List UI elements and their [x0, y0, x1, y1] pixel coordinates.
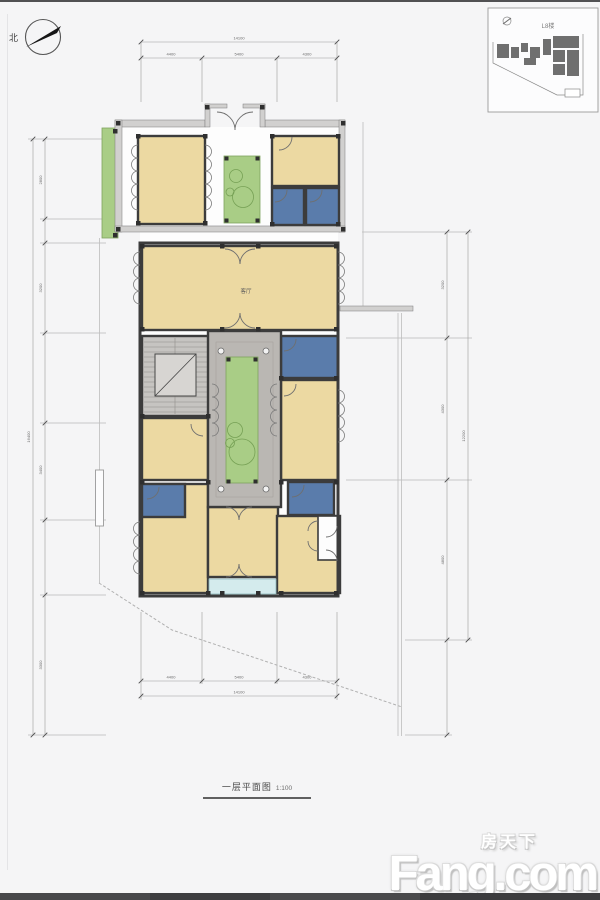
hall-room-label: 客厅	[240, 287, 252, 295]
boundary-gate-marker	[96, 470, 104, 526]
dim-right-seg: 4300	[440, 404, 445, 414]
north-courtyard	[224, 156, 260, 223]
drawing-caption: 一层平面图1:100	[203, 777, 311, 799]
dim-right-overall: 12200	[461, 430, 466, 442]
dim-top-seg: 5400	[235, 52, 245, 57]
floor-plan-canvas: 14100 4400 5400 4300 4400 5400 4300 1410…	[0, 0, 600, 900]
room-mid-east-bath	[281, 336, 338, 378]
dim-top-seg: 4300	[303, 52, 313, 57]
dimension-lines-left: 2800 3200 3400 3300 16400	[26, 137, 106, 738]
room-north-bath-b	[306, 188, 339, 225]
site-map-entry	[565, 89, 580, 97]
site-key-map: L8楼	[488, 8, 598, 112]
courtyard-garden	[226, 357, 258, 483]
dim-left-seg: 3400	[38, 465, 43, 475]
dim-bottom-overall: 14100	[233, 690, 245, 695]
fang-brand-en: Fang.com	[389, 852, 596, 896]
room-northeast	[272, 136, 339, 186]
dim-top-overall: 14100	[233, 36, 245, 41]
room-mid-west	[142, 418, 208, 480]
central-courtyard	[208, 331, 281, 507]
north-label: 北	[9, 33, 18, 43]
staircase	[142, 336, 209, 416]
dim-left-overall: 16400	[26, 431, 31, 443]
dim-top-seg: 4400	[167, 52, 177, 57]
room-south-west-bath	[142, 484, 185, 517]
dim-left-seg: 3300	[38, 660, 43, 670]
room-south-center	[208, 507, 278, 577]
fang-watermark: 房天下 Fang.com	[389, 828, 596, 896]
site-boundary-diagonal	[99, 583, 402, 707]
north-arrow-icon: 北	[9, 20, 61, 55]
room-north-bath-a	[272, 188, 304, 225]
building-plan: 客厅	[102, 104, 413, 596]
caption-title: 一层平面图	[222, 782, 272, 792]
south-porch	[209, 579, 276, 594]
room-south-east-bath	[288, 482, 334, 515]
dim-bottom-seg: 4400	[167, 675, 177, 680]
dim-left-seg: 2800	[38, 175, 43, 185]
dim-left-seg: 3200	[38, 283, 43, 293]
dim-bottom-seg: 5400	[235, 675, 245, 680]
dim-bottom-seg: 4300	[303, 675, 313, 680]
dimension-lines-bottom: 4400 5400 4300 14100	[139, 612, 340, 700]
bottom-edge-bar	[0, 893, 600, 900]
dimension-lines-top: 14100 4400 5400 4300	[139, 36, 340, 103]
dim-right-seg: 4800	[440, 555, 445, 565]
floorplan-page: 14100 4400 5400 4300 4400 5400 4300 1410…	[0, 0, 600, 900]
north-garden	[224, 156, 260, 223]
dim-right-seg: 3200	[440, 280, 445, 290]
site-map-label: L8楼	[542, 22, 555, 30]
room-northwest	[138, 136, 205, 224]
caption-scale: 1:100	[276, 785, 292, 792]
main-hall	[142, 246, 338, 330]
